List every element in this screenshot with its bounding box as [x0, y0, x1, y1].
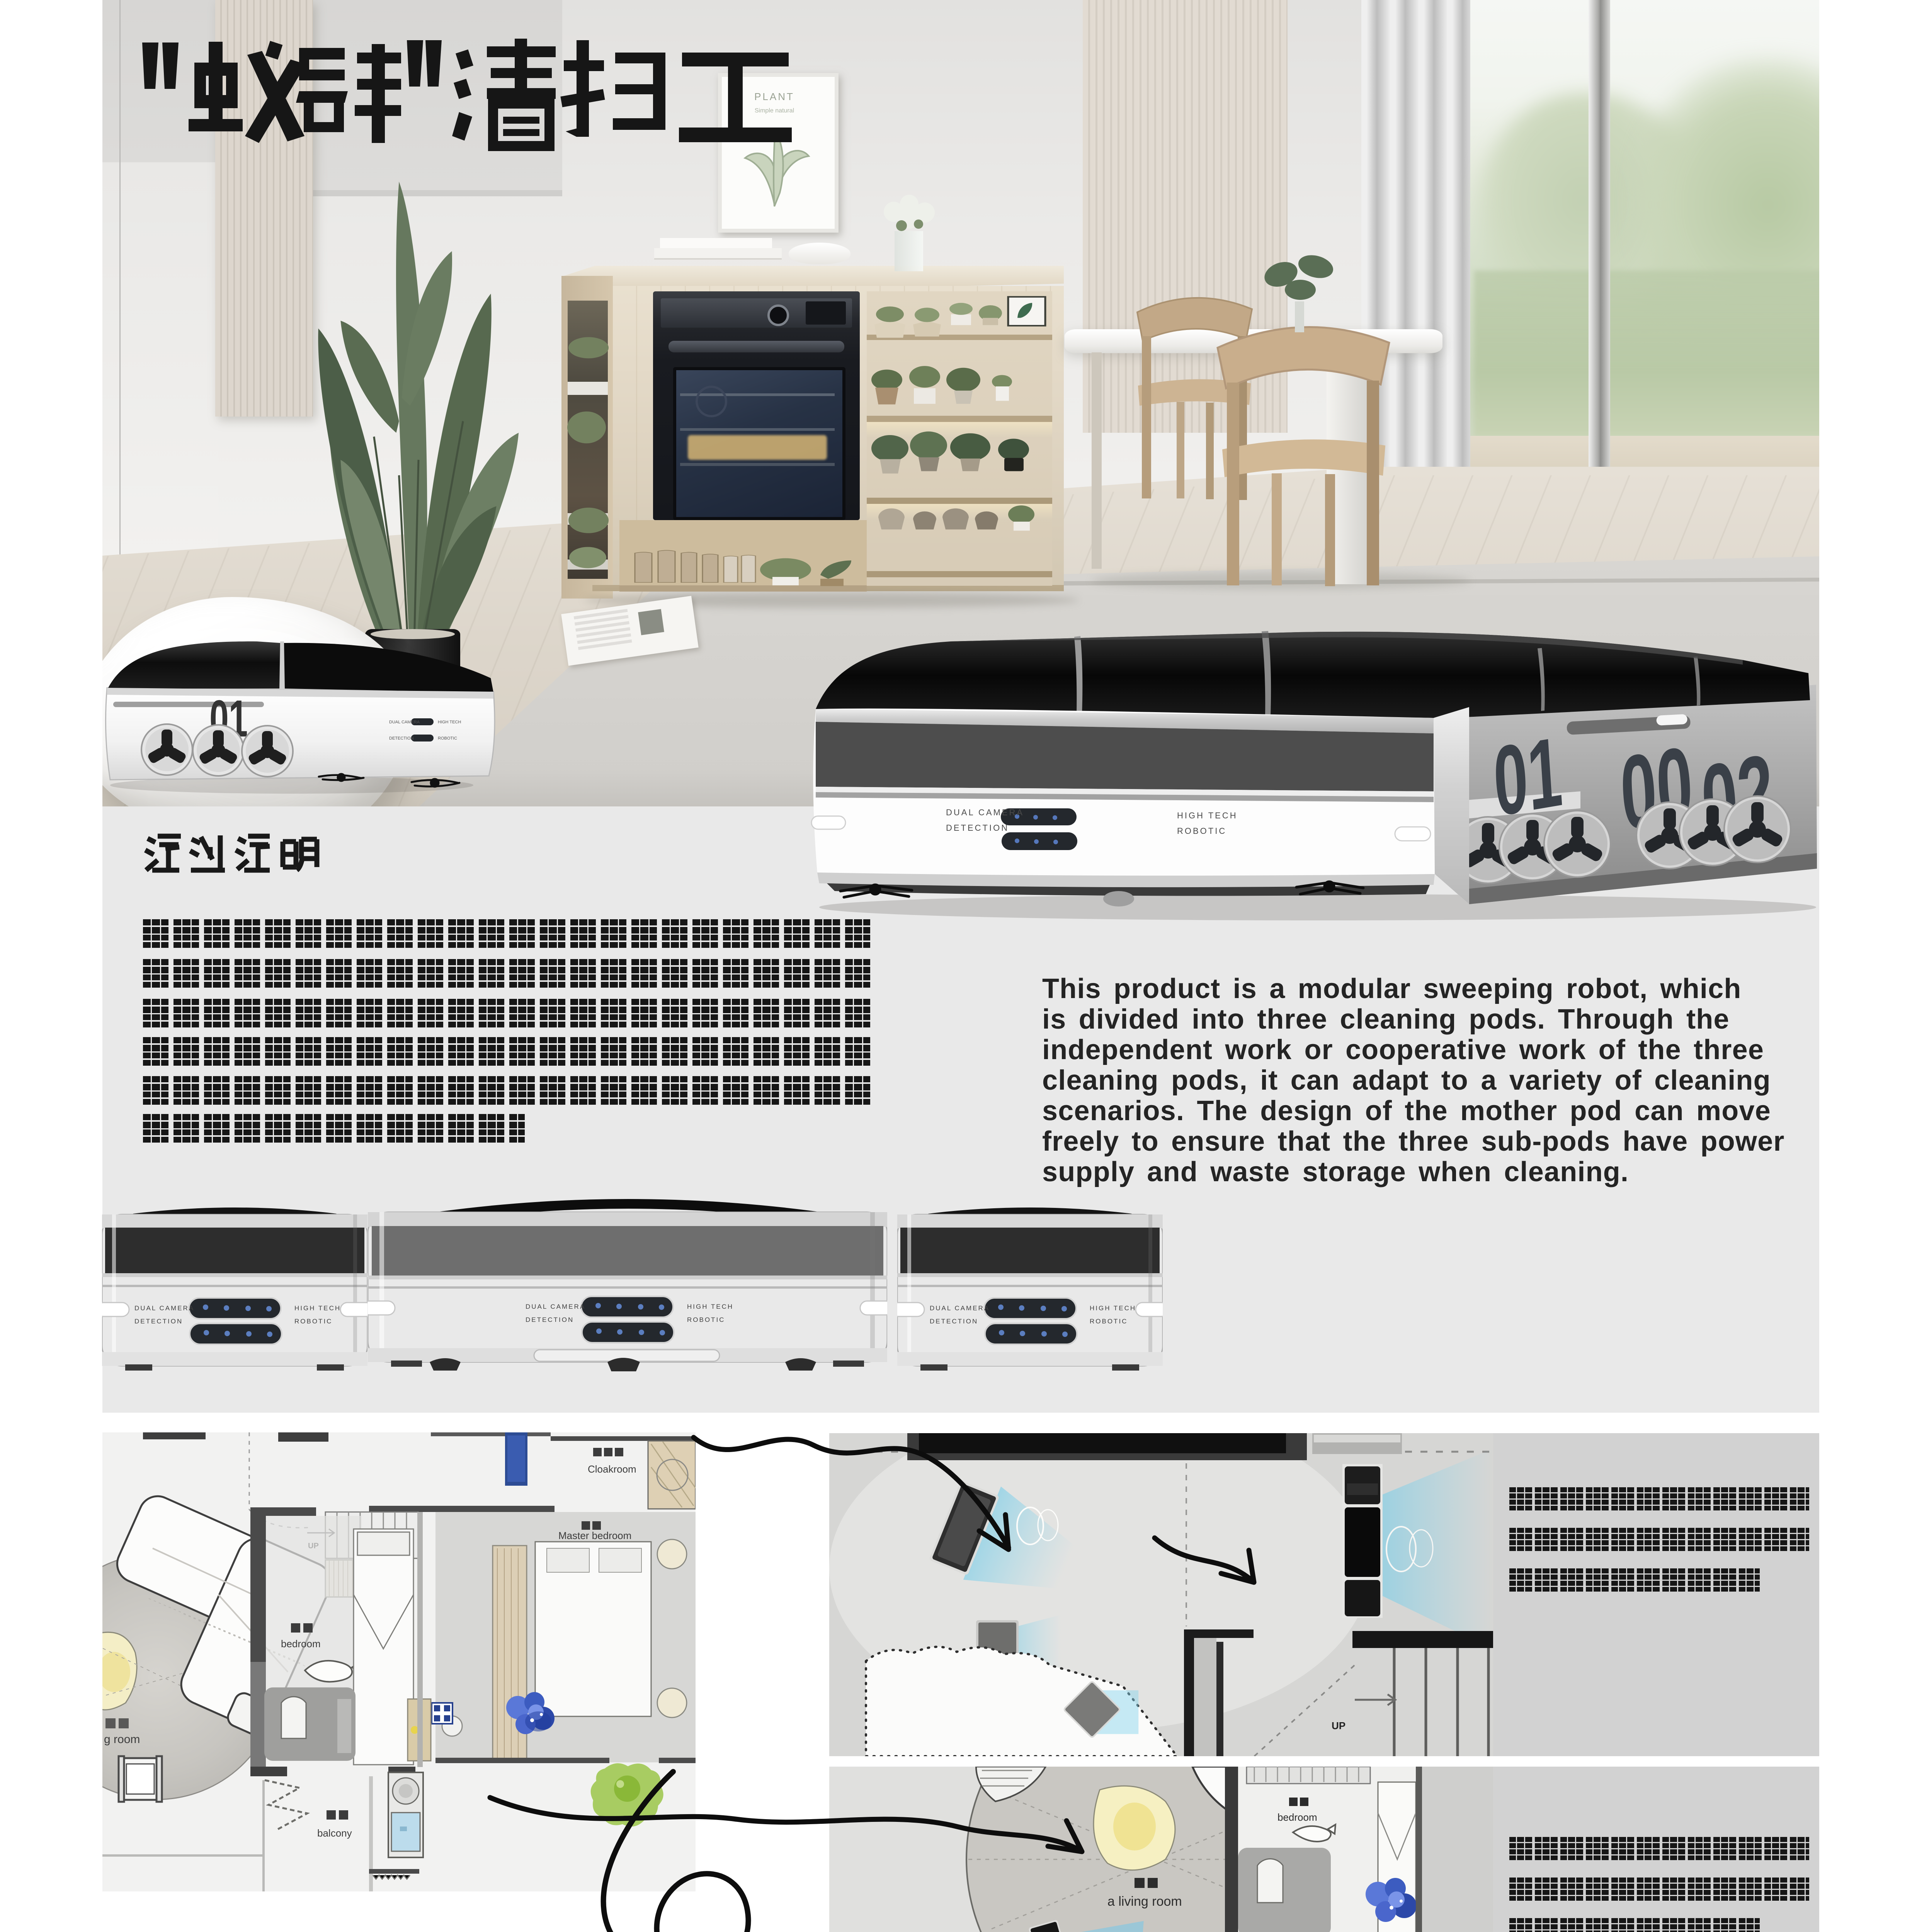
- svg-text:DETECTION: DETECTION: [389, 736, 414, 741]
- svg-text:DETECTION: DETECTION: [946, 823, 1009, 833]
- svg-text:DUAL CAMERA: DUAL CAMERA: [946, 808, 1024, 817]
- svg-text:ROBOTIC: ROBOTIC: [1177, 826, 1226, 836]
- svg-text:HIGH TECH: HIGH TECH: [1177, 811, 1238, 820]
- svg-text:ROBOTIC: ROBOTIC: [438, 736, 457, 741]
- svg-text:HIGH TECH: HIGH TECH: [438, 720, 461, 724]
- svg-text:DUAL CAMERA: DUAL CAMERA: [389, 720, 420, 724]
